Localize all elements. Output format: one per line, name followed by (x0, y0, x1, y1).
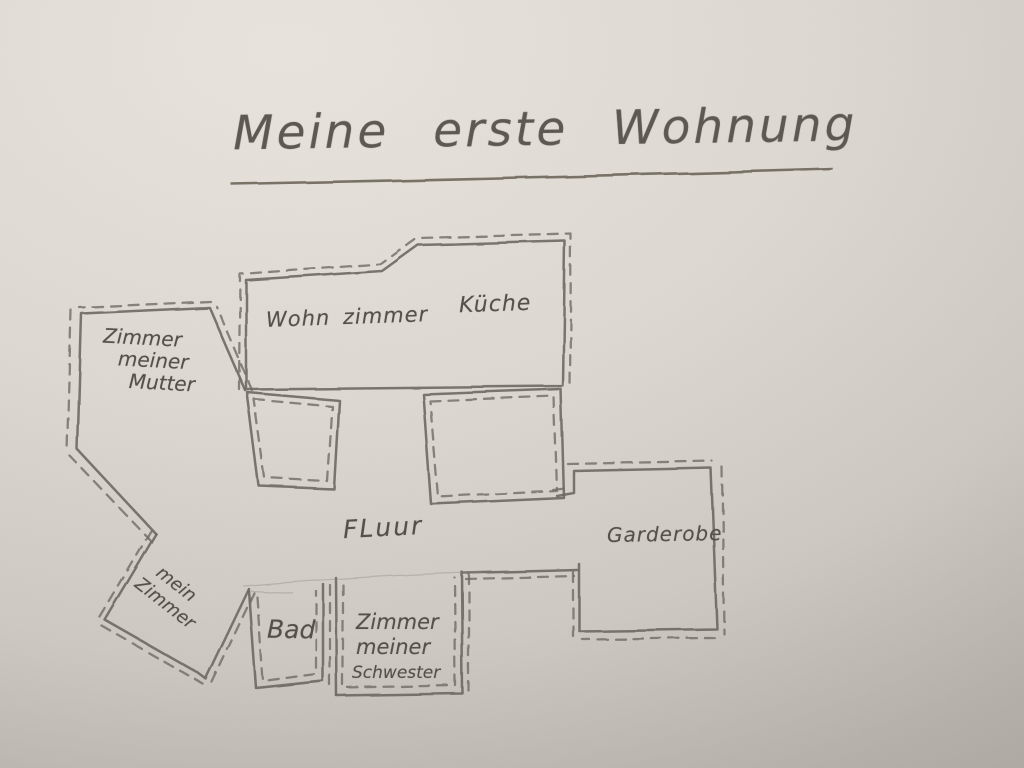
page-title: Meine erste Wohnung (233, 100, 858, 160)
wall-sister-room-left (336, 578, 337, 696)
room-label-sister-line2: meiner (356, 635, 440, 660)
room-label-sister: Zimmer meiner Schwester (356, 610, 440, 683)
room-label-hallway: FLuur (342, 512, 424, 544)
room-label-kitchen: Küche (459, 292, 532, 319)
photographed-paper-sketch: Meine erste Wohnung Zimmer meiner Mutter… (0, 0, 1024, 768)
room-label-mother: Zimmer meiner Mutter (100, 325, 197, 396)
room-label-sister-line1: Zimmer (356, 610, 440, 635)
room-label-mother-line3: Mutter (128, 370, 195, 395)
room-label-bathroom: Bad (267, 616, 316, 644)
room-label-wardrobe: Garderobe (607, 522, 723, 546)
room-label-sister-line3: Schwester (352, 663, 440, 683)
